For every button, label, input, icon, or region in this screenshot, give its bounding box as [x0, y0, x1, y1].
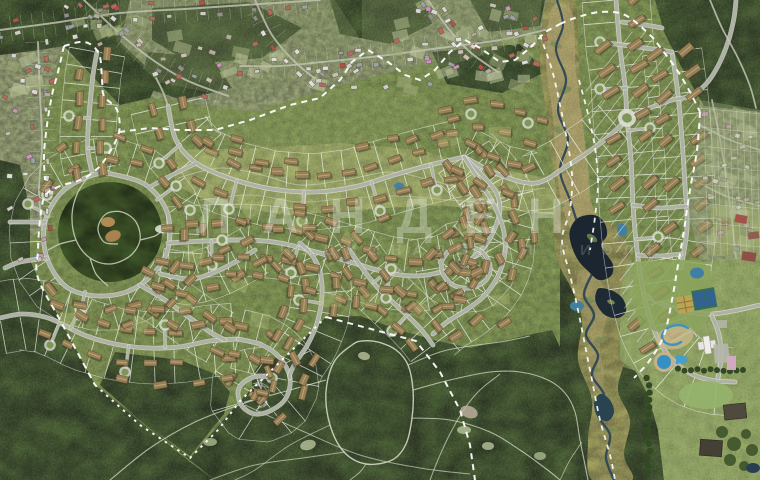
svg-text:НАЦИОНАЛЬНАЯ РИЭЛТ: НАЦИОНАЛЬНАЯ РИЭЛТ	[280, 242, 660, 259]
